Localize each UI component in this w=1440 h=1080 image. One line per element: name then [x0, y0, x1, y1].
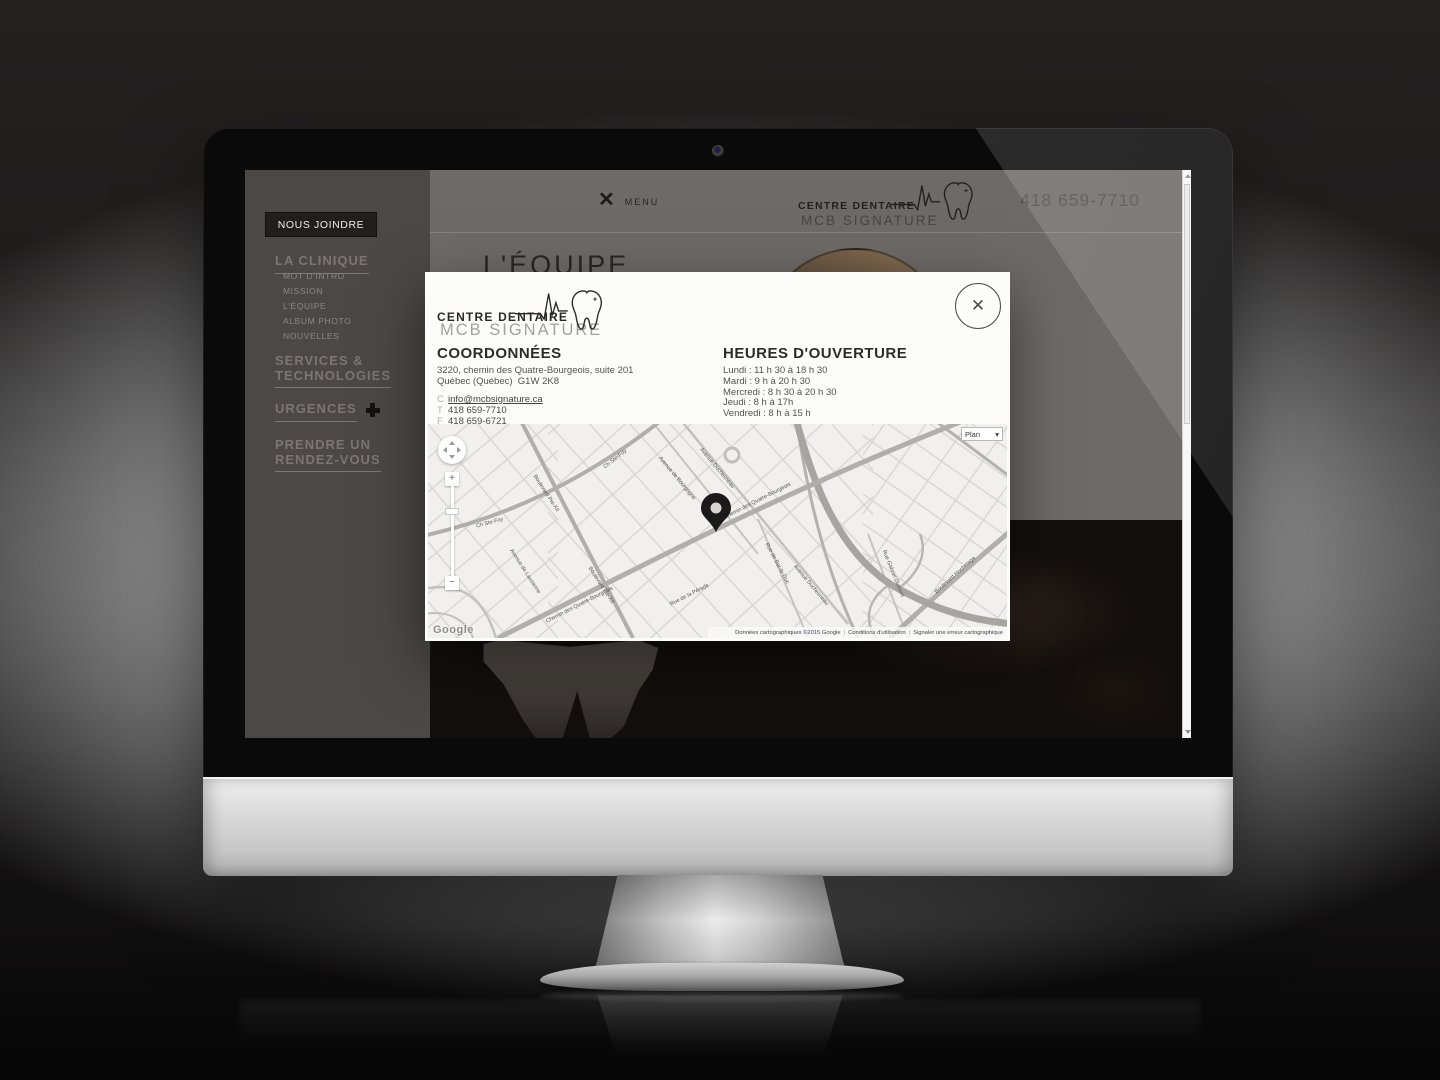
zoom-slider-track[interactable] — [451, 486, 454, 576]
menu-toggle-button[interactable]: ✕ MENU — [598, 191, 659, 209]
scroll-up-icon[interactable] — [1185, 174, 1191, 178]
pan-left-icon[interactable] — [443, 447, 447, 453]
phone-row: T418 659-7710 — [437, 405, 507, 416]
map-attribution: Données cartographiques ©2015 Google | C… — [708, 627, 1007, 638]
pan-down-icon[interactable] — [449, 455, 455, 459]
zoom-in-button[interactable]: + — [445, 472, 459, 486]
sidebar-item-urgences[interactable]: URGENCES — [275, 402, 380, 422]
sidebar-item-mission[interactable]: MISSION — [283, 286, 351, 296]
email-row: Cinfo@mcbsignature.ca — [437, 394, 543, 405]
tooth-ecg-icon — [515, 282, 615, 338]
monitor-chin — [203, 777, 1233, 876]
imac-monitor: ✕ MENU CENTRE DENTAIRE MCB SIGNATURE — [203, 128, 1233, 876]
address-line2: Québec (Québec) G1W 2K8 — [437, 376, 559, 387]
modal-close-button[interactable]: ✕ — [955, 283, 1001, 329]
map-type-select[interactable]: Plan ▾ — [961, 427, 1003, 441]
webcam-icon — [712, 145, 724, 157]
plan-caret-icon: ▾ — [995, 430, 999, 439]
report-error-link[interactable]: Signaler une erreur cartographique — [913, 630, 1003, 636]
hours-monday: Lundi : 11 h 30 à 18 h 30 — [723, 365, 827, 376]
sidebar-item-rendez-vous[interactable]: PRENDRE UN RENDEZ-VOUS — [275, 438, 381, 472]
modal-logo: CENTRE DENTAIRE MCB SIGNATURE — [437, 282, 612, 340]
sidebar-item-services[interactable]: SERVICES & TECHNOLOGIES — [275, 354, 391, 388]
sidebar-item-mot-dintro[interactable]: MOT D'INTRO — [283, 271, 351, 281]
tooth-sculpture — [480, 640, 660, 738]
scrollbar-thumb[interactable] — [1184, 184, 1190, 424]
close-icon: ✕ — [971, 296, 985, 316]
menu-label: MENU — [625, 197, 660, 207]
sidebar-subnav: MOT D'INTRO MISSION L'ÉQUIPE ALBUM PHOTO… — [283, 271, 351, 341]
site-header: ✕ MENU CENTRE DENTAIRE MCB SIGNATURE — [430, 170, 1182, 233]
header-phone[interactable]: 418 659-7710 — [1020, 190, 1140, 211]
google-map[interactable]: Chemin des Quatre-Bourgeois Chemin des Q… — [428, 424, 1007, 638]
menu-close-icon[interactable]: ✕ — [598, 191, 615, 209]
browser-viewport: ✕ MENU CENTRE DENTAIRE MCB SIGNATURE — [245, 170, 1191, 738]
sidebar-nav: NOUS JOINDRE LA CLINIQUE MOT D'INTRO MIS… — [245, 170, 430, 738]
zoom-out-button[interactable]: − — [445, 576, 459, 590]
map-pan-control[interactable] — [438, 436, 466, 464]
hours-wednesday: Mercredi : 8 h 30 à 20 h 30 — [723, 387, 837, 398]
terms-link[interactable]: Conditions d'utilisation — [848, 630, 906, 636]
pan-right-icon[interactable] — [457, 447, 461, 453]
address-line1: 3220, chemin des Quatre-Bourgeois, suite… — [437, 365, 633, 376]
phone-value: 418 659-7710 — [448, 405, 507, 416]
zoom-slider-handle[interactable] — [445, 508, 459, 515]
hours-tuesday: Mardi : 9 h à 20 h 30 — [723, 376, 810, 387]
browser-scrollbar[interactable] — [1182, 170, 1191, 738]
attribution-separator: | — [844, 630, 846, 636]
phone-prefix: T — [437, 405, 448, 416]
attribution-separator: | — [909, 630, 911, 636]
hours-title: HEURES D'OUVERTURE — [723, 345, 907, 362]
sidebar-item-equipe[interactable]: L'ÉQUIPE — [283, 301, 351, 311]
sidebar-item-nous-joindre[interactable]: NOUS JOINDRE — [265, 212, 377, 237]
map-type-label: Plan — [965, 430, 980, 439]
hours-thursday: Jeudi : 8 h à 17h — [723, 397, 793, 408]
map-canvas[interactable]: Chemin des Quatre-Bourgeois Chemin des Q… — [428, 424, 1007, 638]
sidebar-item-nouvelles[interactable]: NOUVELLES — [283, 331, 351, 341]
google-logo[interactable]: Google — [433, 624, 474, 636]
pan-up-icon[interactable] — [449, 441, 455, 445]
desktop-backdrop: ✕ MENU CENTRE DENTAIRE MCB SIGNATURE — [0, 0, 1440, 1080]
scroll-down-icon[interactable] — [1185, 730, 1191, 734]
email-prefix: C — [437, 394, 448, 405]
email-link[interactable]: info@mcbsignature.ca — [448, 394, 543, 405]
contact-modal: CENTRE DENTAIRE MCB SIGNATURE ✕ COORDO — [425, 272, 1010, 641]
urgences-plus-icon — [366, 403, 380, 417]
coordonnees-title: COORDONNÉES — [437, 345, 562, 362]
attribution-data: Données cartographiques ©2015 Google — [735, 630, 840, 636]
header-logo[interactable]: CENTRE DENTAIRE MCB SIGNATURE — [798, 178, 988, 228]
hours-friday: Vendredi : 8 h à 15 h — [723, 408, 811, 419]
floor-shadow — [0, 920, 1440, 1080]
tooth-ecg-icon — [890, 178, 985, 224]
sidebar-item-album-photo[interactable]: ALBUM PHOTO — [283, 316, 351, 326]
